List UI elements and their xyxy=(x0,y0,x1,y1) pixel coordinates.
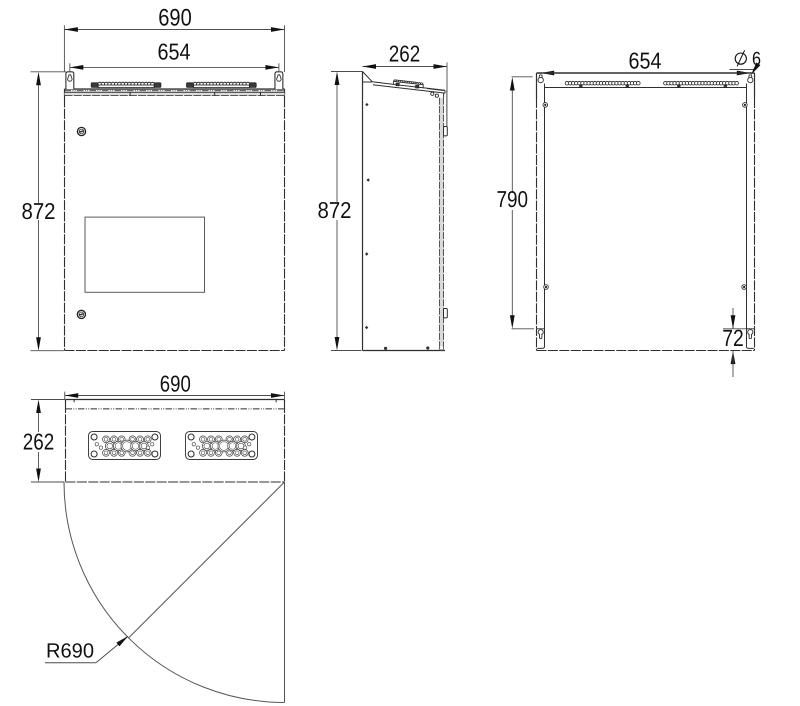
svg-text:872: 872 xyxy=(22,198,56,224)
svg-text:690: 690 xyxy=(158,4,192,31)
svg-text:654: 654 xyxy=(629,48,662,74)
svg-text:262: 262 xyxy=(23,428,55,454)
svg-text:262: 262 xyxy=(389,41,421,67)
svg-text:790: 790 xyxy=(497,186,529,212)
svg-text:872: 872 xyxy=(318,197,352,223)
svg-text:690: 690 xyxy=(160,370,191,396)
svg-text:R690: R690 xyxy=(46,640,94,663)
svg-text:654: 654 xyxy=(158,39,191,65)
